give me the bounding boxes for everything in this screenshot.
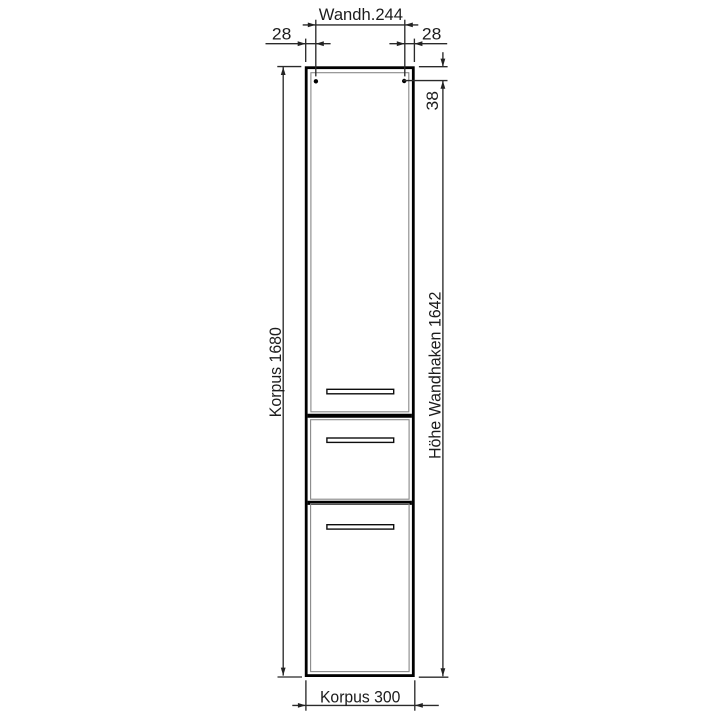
- svg-text:Korpus 1680: Korpus 1680: [266, 327, 285, 417]
- svg-text:28: 28: [422, 25, 442, 44]
- svg-text:38: 38: [423, 91, 442, 111]
- svg-text:Wandh.244: Wandh.244: [319, 5, 403, 24]
- svg-text:Höhe Wandhaken 1642: Höhe Wandhaken 1642: [425, 292, 444, 460]
- svg-text:28: 28: [272, 25, 292, 44]
- svg-text:Korpus 300: Korpus 300: [320, 687, 401, 706]
